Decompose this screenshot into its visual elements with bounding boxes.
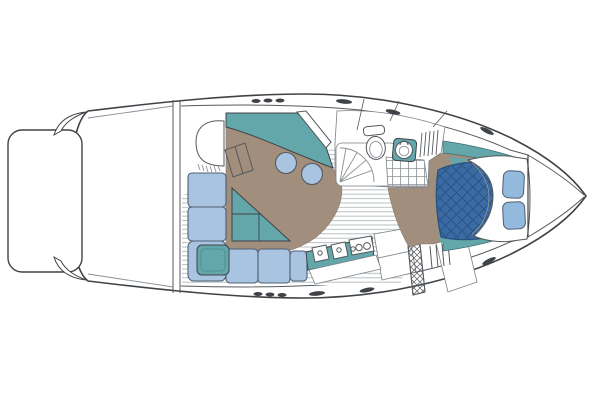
vanity-sink: [392, 138, 417, 162]
boat-floorplan-canvas: [0, 0, 606, 402]
galley-sink-1: [312, 245, 329, 262]
deck-vents-top: [252, 99, 285, 104]
bar-stool-2: [302, 164, 323, 185]
boat-floorplan: [0, 0, 606, 402]
swim-platform: [8, 130, 82, 272]
sofa-cushion: [188, 207, 226, 241]
sofa-cushion: [226, 249, 258, 283]
stove: [349, 236, 374, 255]
corner-table: [197, 245, 229, 275]
sofa-cushion: [258, 249, 290, 283]
galley-sink-2: [331, 242, 348, 259]
sofa-cushion: [290, 251, 307, 281]
bar-stool-1: [276, 153, 297, 174]
sofa-cushion: [188, 173, 226, 207]
pillow-2: [502, 201, 525, 229]
pillow-1: [502, 170, 524, 198]
